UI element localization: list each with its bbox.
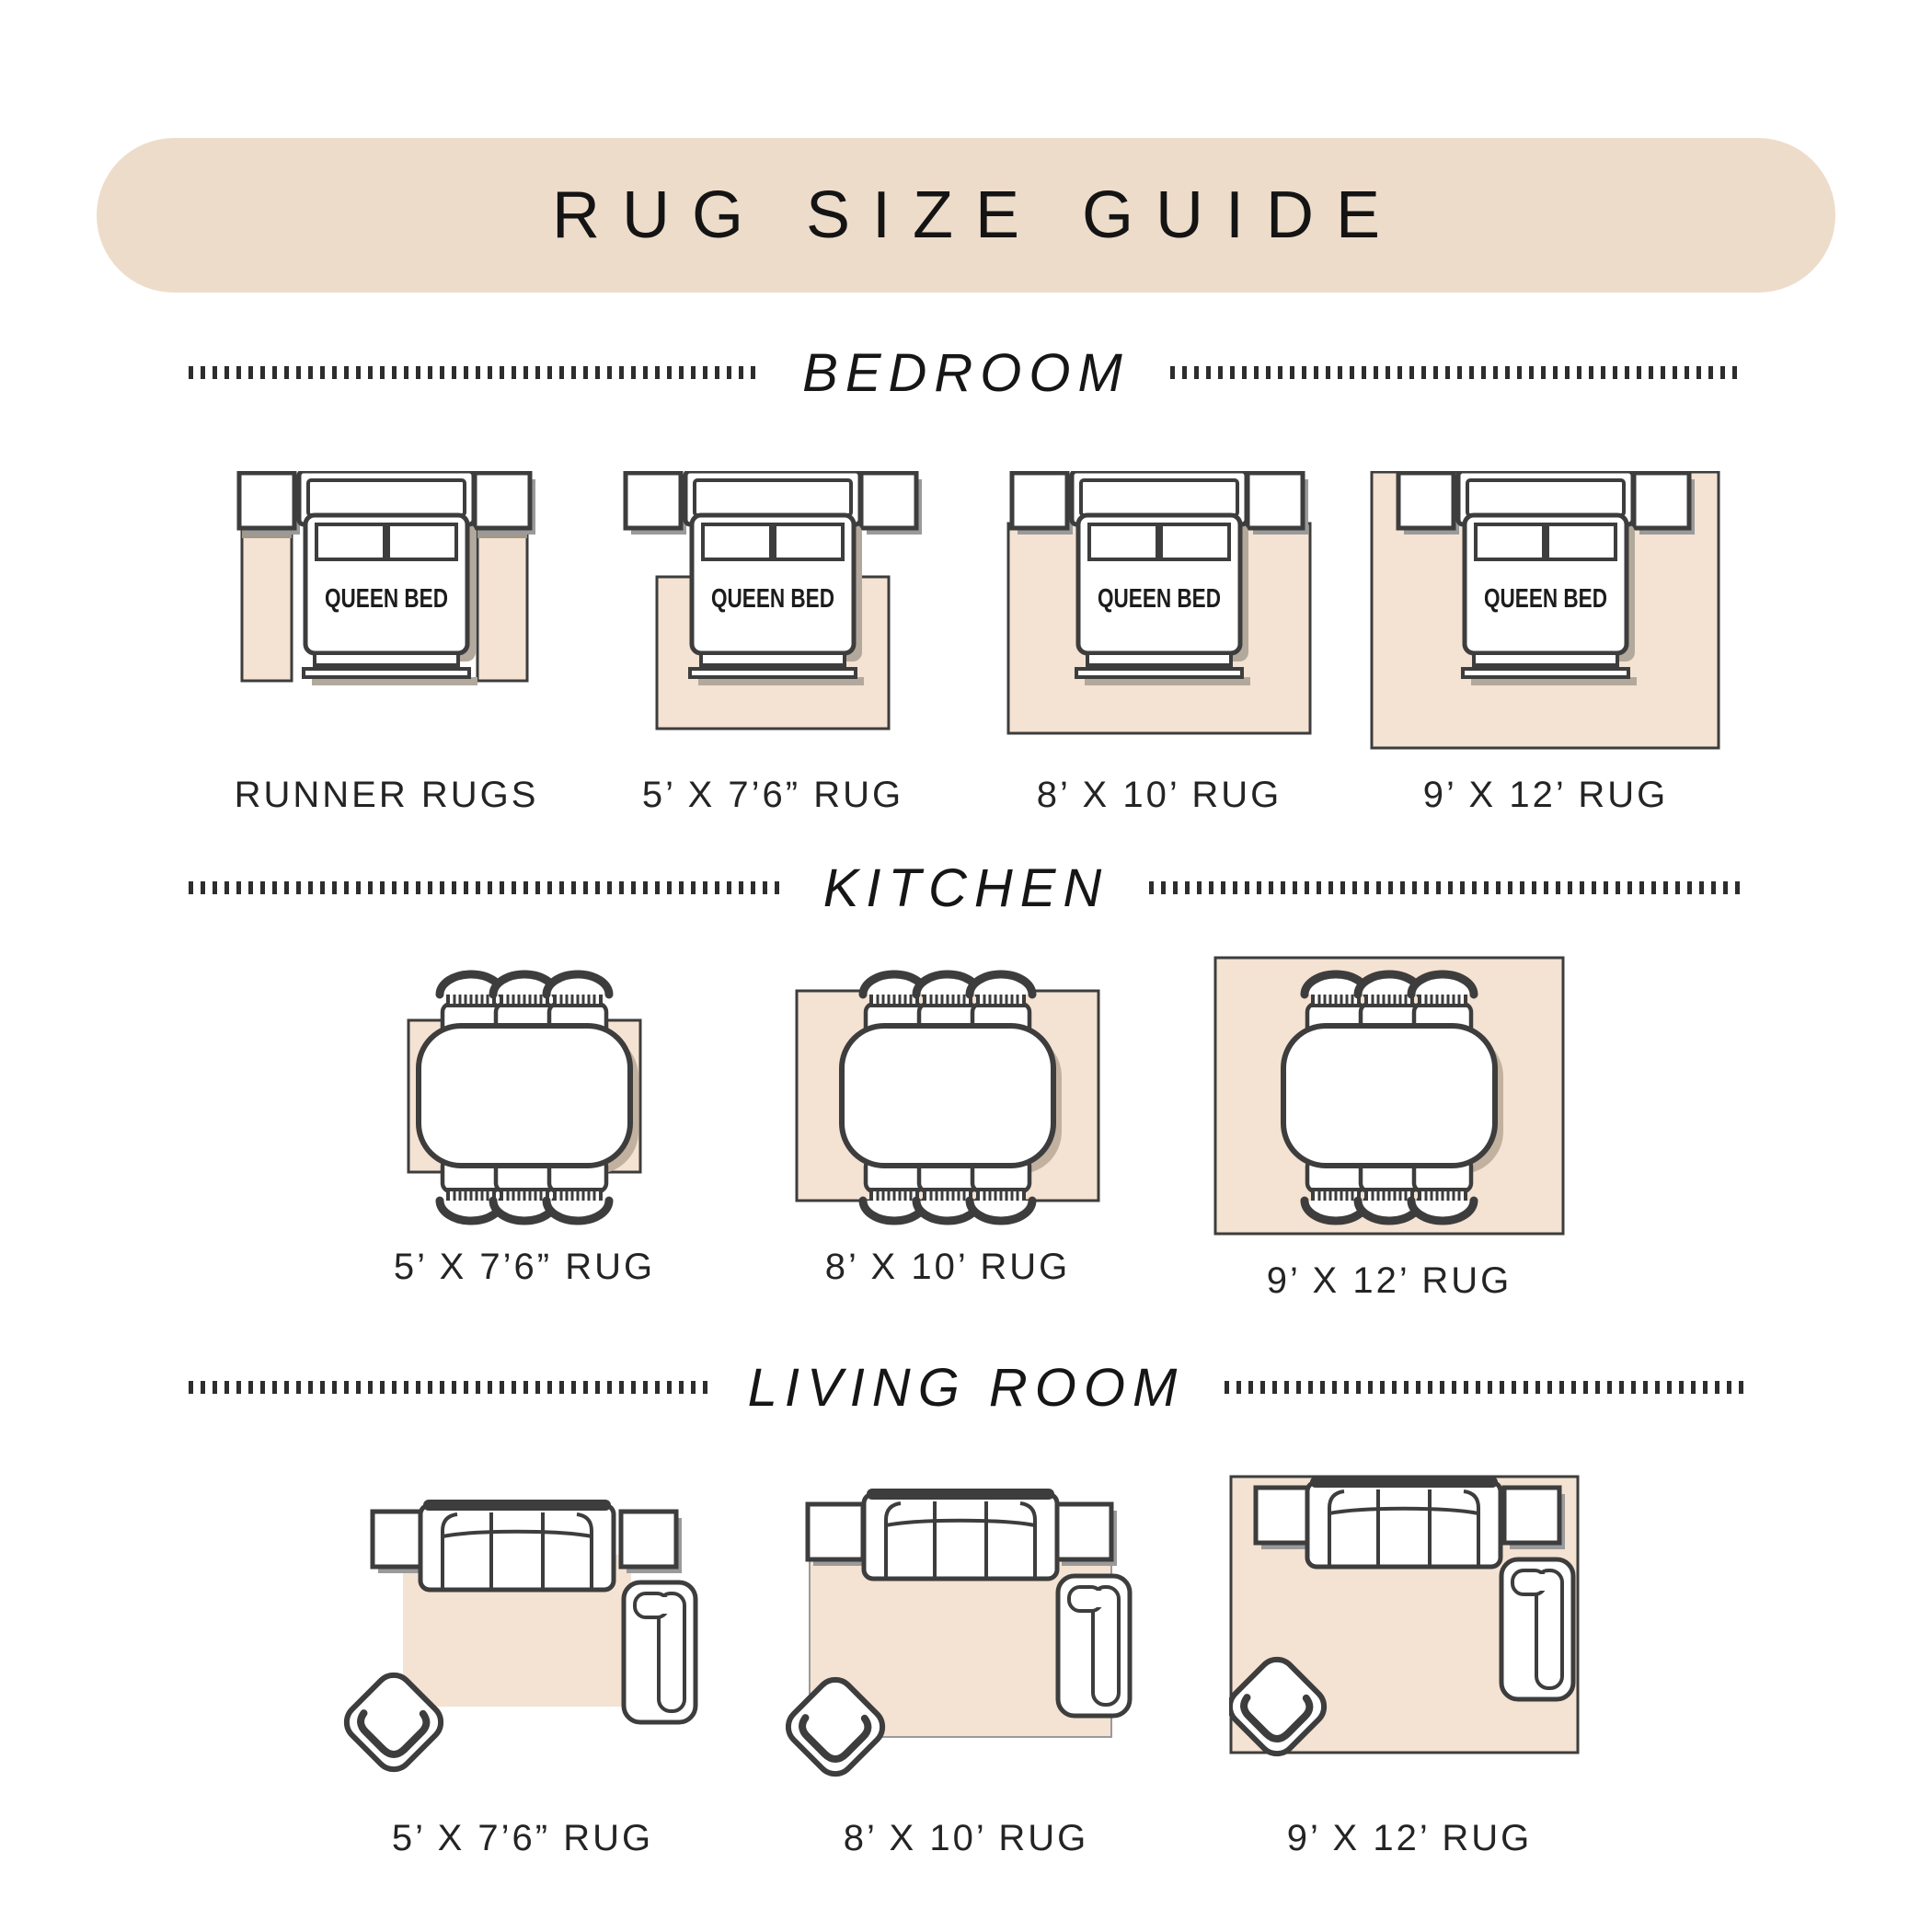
living-room-figures-row: 5’ X 7’6” RUG 8’ X 10’ RUG 9’ xyxy=(0,1475,1932,1860)
kitchen-9x12-figure: 9’ X 12’ RUG xyxy=(1196,944,1582,1303)
chaise-chair xyxy=(1501,1559,1573,1699)
dining-table-set xyxy=(842,974,1062,1221)
figure-label: 9’ X 12’ RUG xyxy=(1287,1816,1532,1860)
living-room-section-title: LIVING ROOM xyxy=(748,1357,1185,1419)
dotted-divider-right xyxy=(1170,366,1743,379)
chaise-chair xyxy=(624,1582,696,1722)
figure-label: 9’ X 12’ RUG xyxy=(1423,773,1668,817)
living-5x76-diagram xyxy=(342,1489,703,1792)
nightstand-right xyxy=(1248,473,1308,535)
bedroom-section-title: BEDROOM xyxy=(802,342,1130,404)
living-8x10-figure: 8’ X 10’ RUG xyxy=(786,1489,1146,1860)
figure-label: 5’ X 7’6” RUG xyxy=(642,773,903,817)
figure-label: 8’ X 10’ RUG xyxy=(844,1816,1088,1860)
kitchen-figures-row: 5’ X 7’6” RUG 8’ X 10’ RUG 9’ X 12’ RUG xyxy=(0,944,1932,1303)
living-5x76-figure: 5’ X 7’6” RUG xyxy=(342,1489,703,1860)
kitchen-9x12-diagram xyxy=(1196,944,1582,1248)
page-title: RUG SIZE GUIDE xyxy=(530,178,1402,253)
kitchen-8x10-diagram xyxy=(773,958,1122,1234)
dotted-divider-left xyxy=(189,366,762,379)
dotted-divider-right xyxy=(1149,881,1743,894)
sofa xyxy=(420,1500,614,1590)
sofa xyxy=(864,1489,1057,1579)
bedroom-8x10-figure: 8’ X 10’ RUG xyxy=(966,471,1352,817)
living-9x12-diagram xyxy=(1229,1475,1590,1792)
side-table-right xyxy=(1056,1504,1117,1566)
bedroom-5x76-diagram xyxy=(580,471,966,765)
queen-bed xyxy=(299,471,477,685)
queen-bed xyxy=(685,471,864,685)
bedroom-8x10-diagram xyxy=(966,471,1352,765)
dotted-divider-right xyxy=(1225,1381,1743,1394)
nightstand-right xyxy=(861,473,922,535)
queen-bed xyxy=(1072,471,1250,685)
side-table-left xyxy=(808,1504,868,1566)
kitchen-8x10-figure: 8’ X 10’ RUG xyxy=(773,958,1122,1289)
bedroom-figures-row: RUNNER RUGS 5’ X 7’6” RUG 8’ X 10’ RUG xyxy=(0,471,1932,817)
bedroom-9x12-diagram xyxy=(1352,471,1739,765)
living-8x10-diagram xyxy=(786,1489,1146,1792)
chaise-chair xyxy=(1058,1576,1130,1716)
dotted-divider-left xyxy=(189,1381,707,1394)
figure-label: 5’ X 7’6” RUG xyxy=(392,1816,653,1860)
nightstand-left xyxy=(1012,473,1073,535)
sofa xyxy=(1307,1477,1501,1567)
kitchen-5x76-diagram xyxy=(350,958,699,1234)
bedroom-5x76-figure: 5’ X 7’6” RUG xyxy=(580,471,966,817)
side-table-right xyxy=(621,1512,682,1573)
dotted-divider-left xyxy=(189,881,783,894)
figure-label: 8’ X 10’ RUG xyxy=(825,1245,1070,1289)
bedroom-section-header: BEDROOM xyxy=(0,340,1932,405)
figure-label: 9’ X 12’ RUG xyxy=(1267,1259,1512,1303)
side-table-right xyxy=(1504,1488,1565,1549)
bedroom-runner-rugs-diagram xyxy=(193,471,580,765)
rug-size-guide-page: RUG SIZE GUIDE BEDROOM RUNNER RUGS xyxy=(0,0,1932,1932)
kitchen-section-title: KITCHEN xyxy=(823,857,1110,919)
living-9x12-figure: 9’ X 12’ RUG xyxy=(1229,1475,1590,1860)
bedroom-runner-rugs-figure: RUNNER RUGS xyxy=(193,471,580,817)
figure-label: 8’ X 10’ RUG xyxy=(1037,773,1282,817)
nightstand-left xyxy=(239,473,300,535)
nightstand-right xyxy=(1634,473,1695,535)
kitchen-5x76-figure: 5’ X 7’6” RUG xyxy=(350,958,699,1289)
figure-label: 5’ X 7’6” RUG xyxy=(394,1245,655,1289)
living-room-section-header: LIVING ROOM xyxy=(0,1355,1932,1420)
dining-table-set xyxy=(419,974,638,1221)
nightstand-left xyxy=(626,473,686,535)
bedroom-9x12-figure: 9’ X 12’ RUG xyxy=(1352,471,1739,817)
kitchen-section-header: KITCHEN xyxy=(0,856,1932,920)
dining-table-set xyxy=(1283,974,1503,1221)
nightstand-right xyxy=(475,473,535,535)
figure-label: RUNNER RUGS xyxy=(235,773,539,817)
queen-bed xyxy=(1458,471,1637,685)
nightstand-left xyxy=(1398,473,1459,535)
title-banner: RUG SIZE GUIDE xyxy=(97,138,1835,293)
